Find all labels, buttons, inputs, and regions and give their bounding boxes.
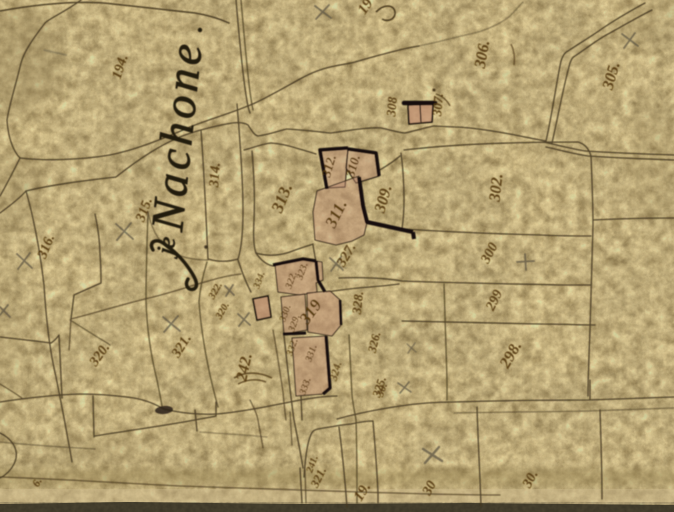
svg-text:314.: 314. (207, 162, 224, 188)
svg-text:308: 308 (383, 96, 400, 118)
svg-text:328.: 328. (349, 290, 366, 315)
svg-text:302.: 302. (487, 173, 507, 204)
svg-text:307.: 307. (429, 93, 446, 118)
